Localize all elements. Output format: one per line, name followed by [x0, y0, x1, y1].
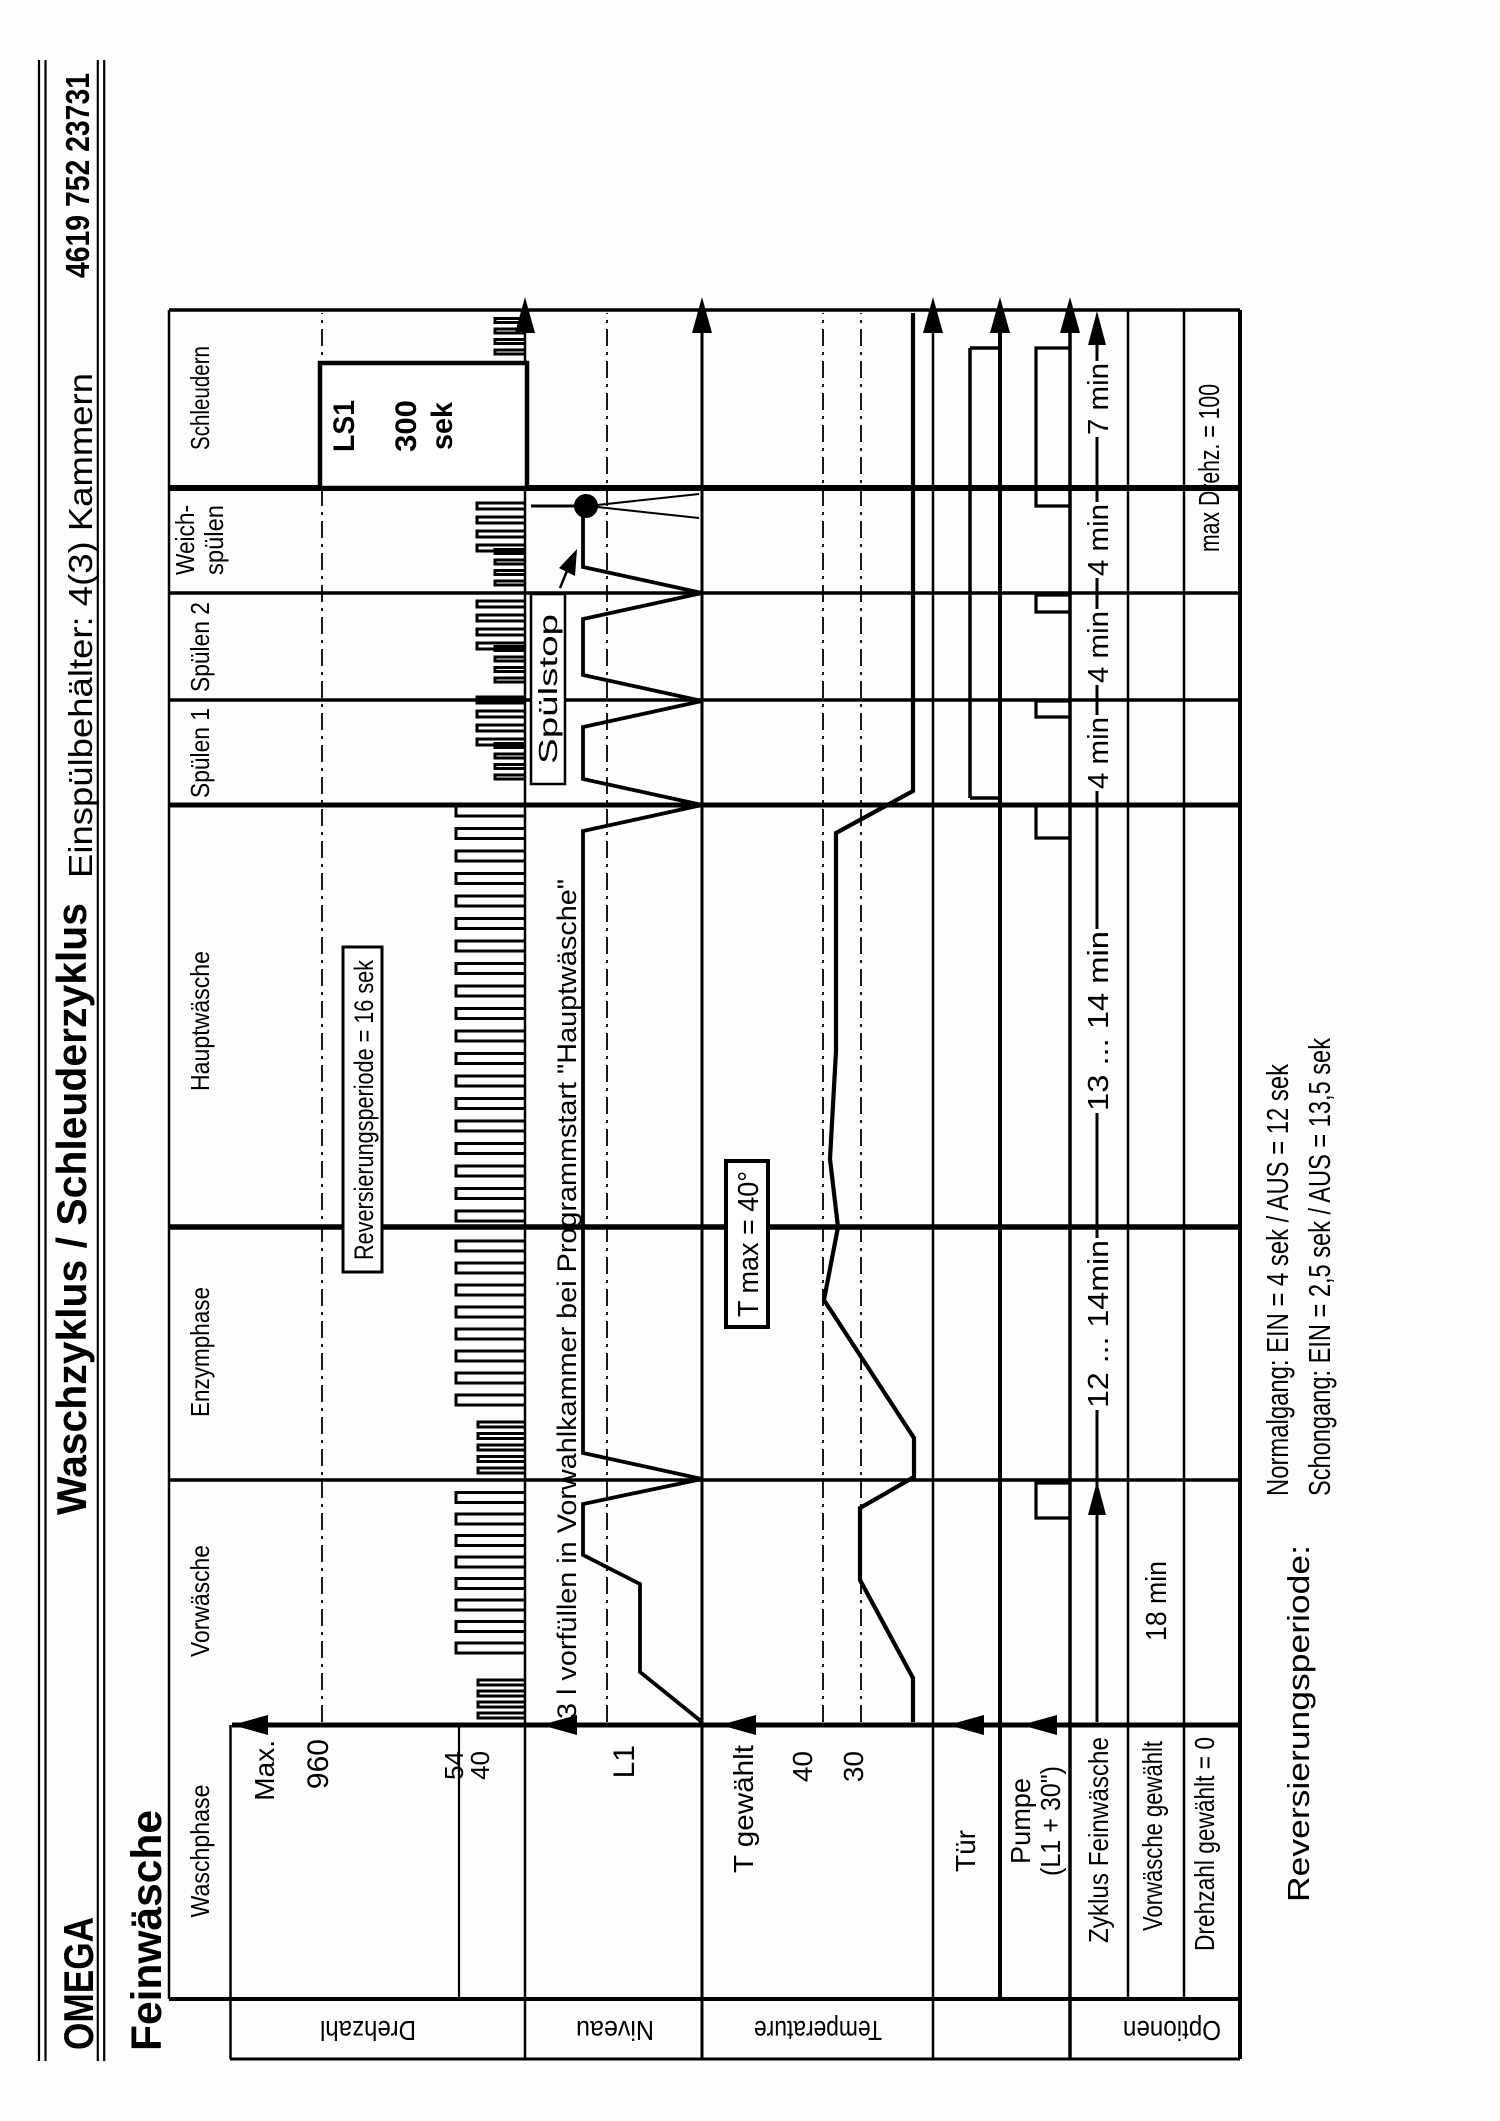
svg-text:Spülstop: Spülstop: [533, 614, 563, 764]
svg-text:T max = 40°: T max = 40°: [733, 1171, 765, 1317]
svg-text:30: 30: [838, 1751, 869, 1782]
svg-text:40: 40: [787, 1751, 818, 1782]
svg-text:Niveau: Niveau: [576, 2015, 654, 2046]
svg-text:Optionen: Optionen: [1123, 2015, 1221, 2046]
svg-text:18 min: 18 min: [1141, 1561, 1173, 1641]
svg-text:Einspülbehälter: 4(3) Kammern: Einspülbehälter: 4(3) Kammern: [62, 373, 99, 878]
svg-text:Vorwäsche gewählt: Vorwäsche gewählt: [1137, 1741, 1168, 1931]
svg-text:spülen: spülen: [199, 505, 229, 575]
svg-text:Drehzahl: Drehzahl: [320, 2015, 416, 2046]
svg-text:13 ... 14 min: 13 ... 14 min: [1083, 931, 1115, 1111]
svg-text:OMEGA: OMEGA: [55, 1917, 102, 2050]
svg-text:sek: sek: [426, 402, 459, 450]
svg-text:Schleudern: Schleudern: [185, 346, 215, 450]
svg-text:4 min: 4 min: [1083, 611, 1115, 683]
svg-text:Reversierungsperiode:: Reversierungsperiode:: [1281, 1545, 1316, 1902]
svg-text:Vorwäsche: Vorwäsche: [185, 1545, 215, 1657]
svg-text:40: 40: [465, 1751, 495, 1780]
svg-text:Max.: Max.: [249, 1740, 280, 1801]
svg-text:Reversierungsperiode = 16 sek: Reversierungsperiode = 16 sek: [349, 960, 379, 1260]
svg-text:Hauptwäsche: Hauptwäsche: [185, 951, 215, 1091]
svg-text:Waschzyklus / Schleuderzyklus: Waschzyklus / Schleuderzyklus: [48, 903, 95, 1515]
svg-text:Drehzahl gewählt = 0: Drehzahl gewählt = 0: [1189, 1737, 1220, 1951]
svg-text:LS1: LS1: [328, 400, 361, 452]
svg-text:Weich-: Weich-: [170, 505, 200, 575]
svg-text:Feinwäsche: Feinwäsche: [123, 1810, 171, 2051]
svg-text:Tür: Tür: [950, 1830, 981, 1872]
svg-text:Temperature: Temperature: [754, 2015, 882, 2046]
svg-text:Zyklus Feinwäsche: Zyklus Feinwäsche: [1083, 1737, 1114, 1943]
svg-text:Schongang: EIN = 2,5 sek / A: Schongang: EIN = 2,5 sek / AUS = 13,5 se…: [1302, 1038, 1337, 1496]
svg-text:3 l vorfüllen in Vorwahlkammer: 3 l vorfüllen in Vorwahlkammer bei Progr…: [552, 879, 582, 1719]
svg-text:300: 300: [390, 400, 423, 452]
svg-text:960: 960: [302, 1739, 335, 1789]
svg-text:max Drehz. = 100: max Drehz. = 100: [1194, 384, 1226, 552]
svg-text:4 min: 4 min: [1083, 504, 1115, 576]
svg-text:Waschphase: Waschphase: [185, 1785, 215, 1918]
svg-text:L1: L1: [608, 1745, 641, 1778]
svg-text:4619 752 23731: 4619 752 23731: [59, 73, 96, 278]
svg-text:7 min: 7 min: [1083, 363, 1115, 435]
svg-text:T gewählt: T gewählt: [728, 1745, 759, 1873]
svg-text:12 ... 14min: 12 ... 14min: [1083, 1240, 1115, 1408]
svg-text:Spülen 1: Spülen 1: [185, 708, 215, 798]
svg-text:Spülen 2: Spülen 2: [185, 602, 215, 692]
svg-text:Enzymphase: Enzymphase: [185, 1287, 215, 1417]
svg-text:Pumpe: Pumpe: [1005, 1778, 1036, 1864]
svg-text:4 min: 4 min: [1083, 717, 1115, 789]
svg-text:Normalgang: EIN = 4 sek / AU: Normalgang: EIN = 4 sek / AUS = 12 sek: [1260, 1064, 1295, 1496]
svg-text:(L1 + 30"): (L1 + 30"): [1035, 1766, 1066, 1876]
